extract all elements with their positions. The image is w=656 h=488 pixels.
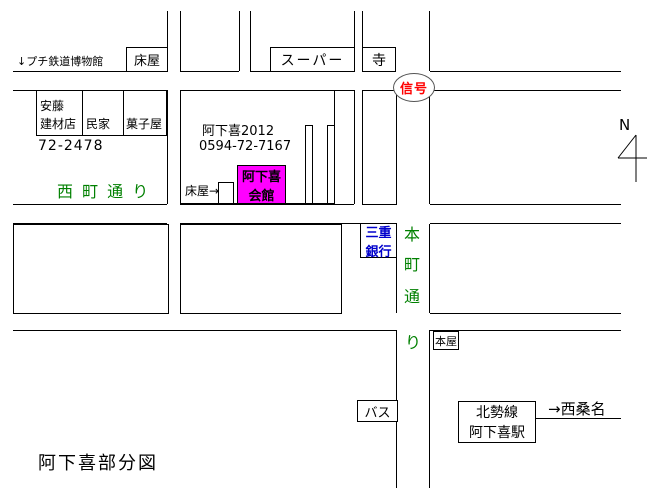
ageki-hall-label-line1: 阿下喜 bbox=[242, 166, 281, 185]
ageki-area-map: 床屋 スーパー 寺 安藤 建材店 民家 菓子屋 阿下喜 会館 三重 銀行 本屋 … bbox=[0, 0, 656, 488]
ando-phone-number: 72-2478 bbox=[38, 139, 104, 154]
building-strip bbox=[305, 125, 313, 204]
bookstore-box: 本屋 bbox=[433, 331, 459, 350]
nishimachi-street-name: 西 町 通 り bbox=[57, 183, 150, 201]
mie-bank-label-line2: 銀行 bbox=[365, 241, 391, 260]
traffic-signal-label: 信号 bbox=[400, 78, 428, 97]
station-label-line1: 北勢線 bbox=[476, 402, 518, 422]
road-edge-line bbox=[429, 224, 430, 313]
barber-shop-top-box: 床屋 bbox=[126, 47, 168, 72]
supermarket-label: スーパー bbox=[281, 50, 345, 70]
road-edge-line bbox=[250, 11, 251, 71]
ando-building-materials-box: 安藤 建材店 bbox=[36, 90, 83, 136]
hall-phone-number: 0594-72-7167 bbox=[199, 140, 291, 154]
ando-label-line2: 建材店 bbox=[40, 118, 76, 131]
barber-shop-top-label: 床屋 bbox=[134, 50, 160, 69]
road-edge-line bbox=[13, 204, 167, 205]
honmachi-street-char-1: 本 bbox=[404, 226, 420, 244]
bus-stop-label: バス bbox=[364, 402, 390, 421]
railway-museum-label: ↓プチ鉄道博物館 bbox=[17, 56, 103, 68]
traffic-signal-badge: 信号 bbox=[393, 73, 435, 102]
road-edge-line bbox=[354, 90, 355, 204]
honmachi-street-char-2: 町 bbox=[404, 256, 420, 274]
road-edge-line bbox=[180, 204, 354, 205]
supermarket-box: スーパー bbox=[270, 47, 355, 72]
road-edge-line bbox=[180, 11, 181, 71]
private-house-label: 民家 bbox=[86, 118, 110, 131]
road-edge-line bbox=[430, 90, 621, 91]
honmachi-street-char-3: 通 bbox=[404, 288, 420, 306]
candy-shop-label: 菓子屋 bbox=[126, 118, 162, 131]
station-label-line2: 阿下喜駅 bbox=[469, 422, 525, 442]
road-edge-line bbox=[429, 330, 430, 488]
mie-bank-label-line1: 三重 bbox=[365, 222, 391, 241]
road-edge-line bbox=[430, 313, 621, 314]
ageki-station-box: 北勢線 阿下喜駅 bbox=[458, 401, 536, 443]
building-strip bbox=[327, 125, 335, 204]
road-edge-line bbox=[167, 90, 168, 204]
railway-line bbox=[535, 418, 621, 419]
map-title: 阿下喜部分図 bbox=[38, 454, 158, 474]
ando-label-line1: 安藤 bbox=[40, 100, 64, 113]
road-edge-line bbox=[430, 223, 621, 224]
road-edge-line bbox=[429, 90, 430, 204]
barber-arrow-label: 床屋→ bbox=[185, 185, 219, 198]
city-block bbox=[13, 224, 169, 314]
city-block bbox=[362, 90, 397, 205]
city-block bbox=[180, 224, 342, 314]
road-edge-line bbox=[430, 71, 621, 72]
bookstore-label: 本屋 bbox=[435, 333, 457, 349]
private-house-box: 民家 bbox=[82, 90, 124, 136]
mie-bank-box: 三重 銀行 bbox=[360, 223, 397, 258]
road-edge-line bbox=[180, 71, 239, 72]
road-edge-line bbox=[430, 204, 621, 205]
barber-shop-small-box bbox=[218, 182, 234, 204]
candy-shop-box: 菓子屋 bbox=[123, 90, 167, 136]
ageki-hall-box: 阿下喜 会館 bbox=[237, 165, 286, 204]
bus-stop-box: バス bbox=[357, 400, 398, 422]
ageki-2012-label: 阿下喜2012 bbox=[202, 125, 274, 139]
temple-label: 寺 bbox=[372, 50, 386, 70]
to-nishikuwana-label: →西桑名 bbox=[548, 401, 606, 418]
temple-box: 寺 bbox=[362, 47, 396, 72]
road-edge-line bbox=[13, 330, 396, 331]
ageki-hall-label-line2: 会館 bbox=[248, 185, 274, 204]
honmachi-street-char-4: り bbox=[405, 334, 421, 352]
north-arrow-icon bbox=[605, 130, 655, 190]
road-edge-line bbox=[239, 11, 240, 71]
road-edge-line bbox=[429, 11, 430, 71]
